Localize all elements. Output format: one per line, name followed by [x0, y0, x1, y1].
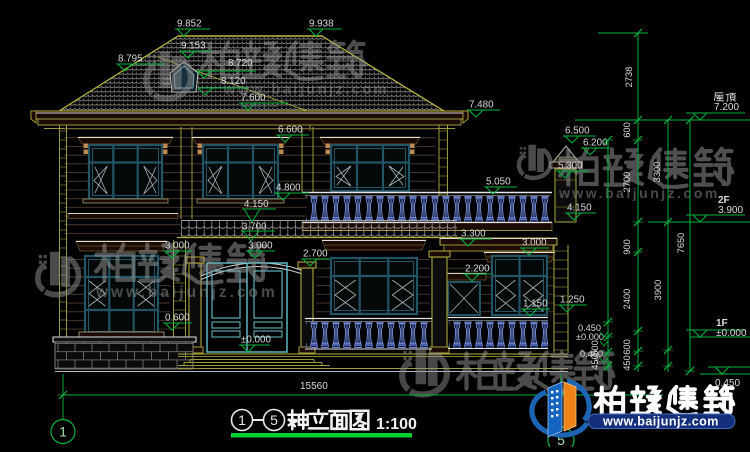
svg-text:1.150: 1.150	[523, 299, 548, 310]
svg-text:4.150: 4.150	[567, 203, 592, 214]
svg-text:7.600: 7.600	[241, 93, 266, 104]
svg-text:4.800: 4.800	[276, 183, 301, 194]
svg-text:15560: 15560	[300, 381, 328, 392]
svg-text:600: 600	[622, 339, 632, 355]
svg-text:900: 900	[622, 239, 632, 255]
svg-text:2700: 2700	[622, 172, 632, 193]
svg-text:www.baijunjz.com: www.baijunjz.com	[558, 185, 720, 201]
svg-text:7650: 7650	[676, 233, 686, 254]
svg-text:9.153: 9.153	[181, 41, 206, 52]
svg-text:8.720: 8.720	[228, 58, 253, 69]
svg-text:600: 600	[590, 340, 600, 356]
svg-text:1: 1	[59, 424, 67, 440]
svg-text:9.852: 9.852	[177, 19, 202, 30]
svg-text:3.000: 3.000	[522, 238, 547, 249]
svg-text:2.200: 2.200	[465, 264, 490, 275]
svg-text:±0.000: ±0.000	[241, 335, 271, 346]
svg-text:3.700: 3.700	[242, 222, 267, 233]
svg-text:7.200: 7.200	[714, 102, 739, 113]
svg-text:2400: 2400	[622, 289, 632, 310]
svg-text:8.120: 8.120	[221, 76, 246, 87]
svg-text:2738: 2738	[624, 67, 634, 88]
svg-text:3.000: 3.000	[248, 241, 273, 252]
svg-text:www.baijunjz.com: www.baijunjz.com	[95, 284, 278, 301]
svg-text:1.250: 1.250	[560, 295, 585, 306]
svg-text:600: 600	[622, 122, 632, 138]
svg-text:5.300: 5.300	[558, 161, 583, 172]
svg-text:8.795: 8.795	[118, 54, 143, 65]
svg-text:0.600: 0.600	[165, 313, 190, 324]
svg-text:6.500: 6.500	[565, 126, 590, 137]
svg-text:2.700: 2.700	[303, 249, 328, 260]
svg-text:5.050: 5.050	[486, 177, 511, 188]
svg-text:3300: 3300	[652, 162, 662, 183]
svg-text:3900: 3900	[653, 280, 663, 301]
svg-text:3.900: 3.900	[718, 205, 743, 216]
svg-text:±0.000: ±0.000	[716, 328, 747, 339]
svg-text:7.480: 7.480	[469, 100, 494, 111]
svg-text:6.600: 6.600	[278, 125, 303, 136]
svg-text:5: 5	[270, 412, 278, 428]
svg-text:www.baijunjz.com: www.baijunjz.com	[602, 415, 719, 429]
svg-text:www.baijunjz.com: www.baijunjz.com	[241, 103, 278, 108]
svg-text:1:100: 1:100	[376, 416, 417, 433]
svg-text:1: 1	[238, 412, 246, 428]
svg-text:450: 450	[622, 355, 632, 371]
svg-text:450: 450	[590, 354, 600, 370]
svg-text:3.300: 3.300	[461, 229, 486, 240]
svg-text:3.000: 3.000	[165, 241, 190, 252]
svg-text:9.938: 9.938	[309, 19, 334, 30]
svg-text:4.150: 4.150	[244, 199, 269, 210]
